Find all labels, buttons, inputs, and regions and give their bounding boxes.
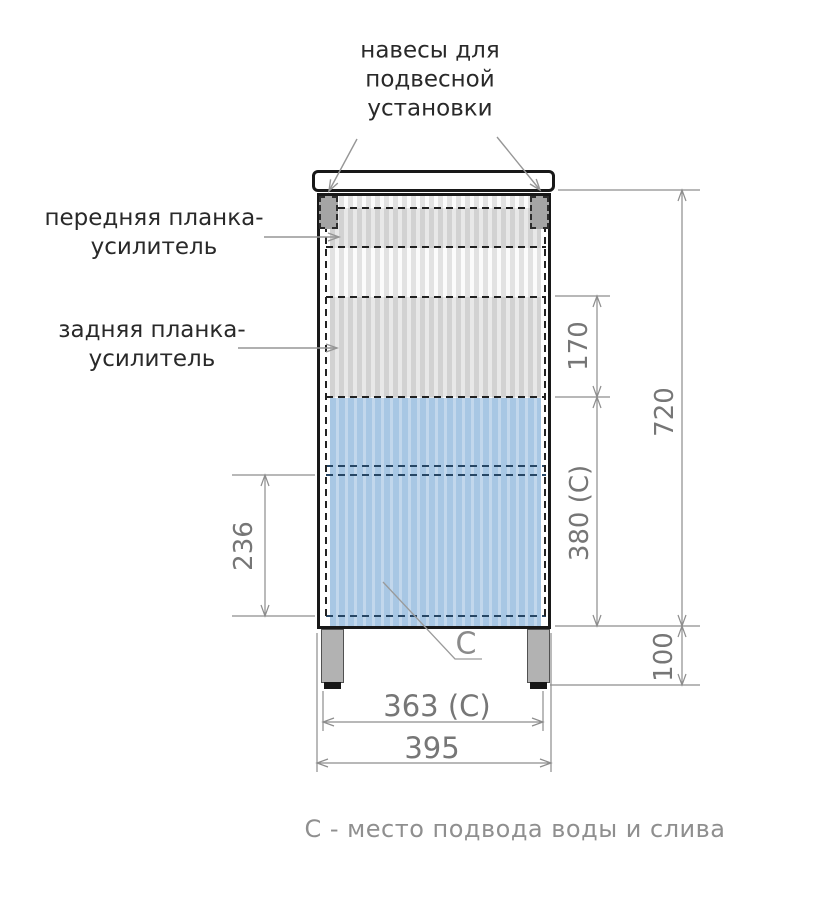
- front-strip-arrow: [264, 233, 339, 241]
- rear-strip-arrow: [238, 344, 337, 352]
- dim-170: [593, 296, 601, 397]
- dim-100: [678, 626, 686, 685]
- rear-strip-label: задняя планка- усилитель: [58, 316, 245, 374]
- dim-label-170: 170: [564, 321, 594, 371]
- dim-label-395: 395: [404, 731, 459, 765]
- leader-hanger-left: [329, 139, 357, 191]
- dim-label-380: 380 (С): [565, 465, 595, 561]
- front-strip-label: передняя планка- усилитель: [44, 204, 263, 262]
- diagram-canvas: навесы для подвесной установки передняя …: [0, 0, 836, 900]
- dim-label-100: 100: [649, 632, 679, 682]
- extension-lines: [232, 190, 700, 772]
- c-zone-marker: С: [456, 627, 477, 662]
- dim-label-363: 363 (С): [383, 689, 490, 723]
- dimension-overlay: [0, 0, 836, 900]
- leader-hanger-right: [497, 137, 540, 190]
- dim-236: [261, 475, 269, 616]
- dim-label-236: 236: [229, 521, 259, 571]
- wall-mount-label: навесы для подвесной установки: [360, 37, 499, 124]
- dim-label-720: 720: [650, 387, 680, 437]
- caption: С - место подвода воды и слива: [305, 815, 726, 843]
